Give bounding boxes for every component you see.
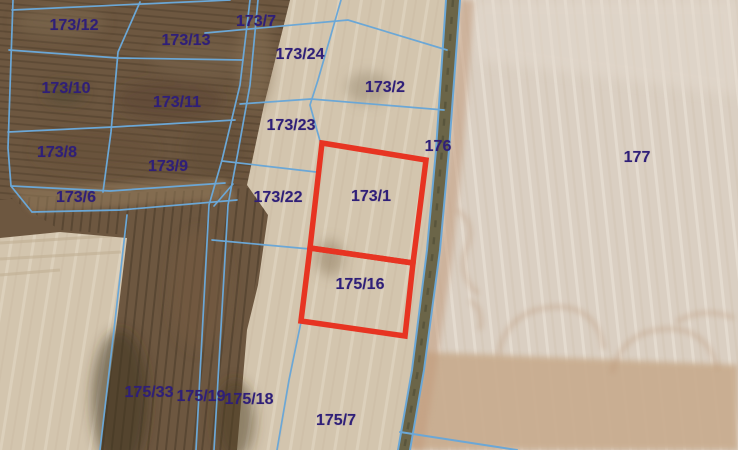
parcel-label-173-7: 173/7: [236, 14, 276, 30]
parcel-label-175-18: 175/18: [225, 392, 274, 408]
parcel-label-175-16: 175/16: [336, 277, 385, 293]
parcel-label-173-12: 173/12: [50, 18, 99, 34]
parcel-label-173-10: 173/10: [42, 81, 91, 97]
parcel-label-173-8: 173/8: [37, 145, 77, 161]
parcel-label-173-9: 173/9: [148, 159, 188, 175]
parcel-label-173-1: 173/1: [351, 189, 391, 205]
parcel-label-176: 176: [425, 139, 452, 155]
parcel-label-173-6: 173/6: [56, 190, 96, 206]
parcel-label-175-19: 175/19: [177, 389, 226, 405]
parcel-label-173-22: 173/22: [254, 190, 303, 206]
cadastral-map-view[interactable]: 173/12173/13173/7173/24173/2173/10173/11…: [0, 0, 738, 450]
parcel-label-173-2: 173/2: [365, 80, 405, 96]
parcel-label-175-33: 175/33: [125, 385, 174, 401]
satellite-map-layer: [0, 0, 738, 450]
parcel-label-173-24: 173/24: [276, 47, 325, 63]
parcel-label-175-7: 175/7: [316, 413, 356, 429]
parcel-label-177: 177: [624, 150, 651, 166]
parcel-label-173-13: 173/13: [162, 33, 211, 49]
parcel-label-173-11: 173/11: [153, 95, 201, 111]
parcel-label-173-23: 173/23: [267, 118, 316, 134]
